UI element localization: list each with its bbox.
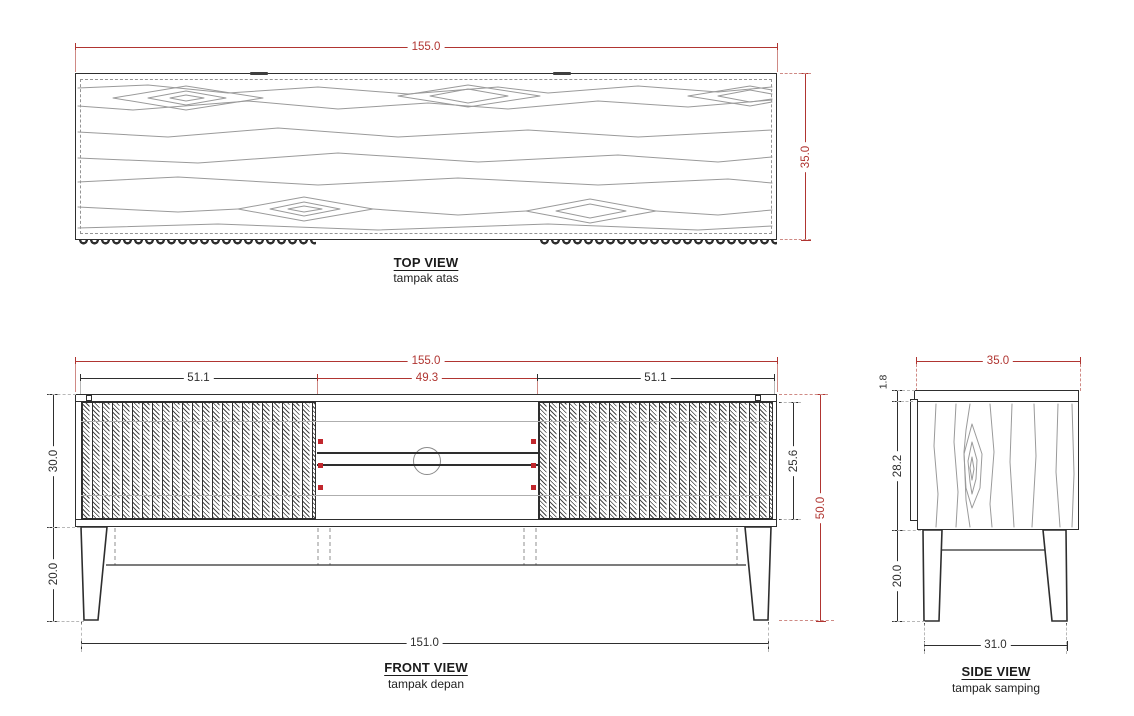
- dim-side-body-height: 28.2: [897, 401, 898, 530]
- extension-line: [892, 390, 915, 391]
- dim-side-depth-label: 35.0: [983, 355, 1013, 367]
- interior-shelf-line: [81, 421, 773, 422]
- top-view-subtitle: tampak atas: [393, 271, 458, 285]
- dim-front-overall-width-label: 155.0: [408, 355, 445, 367]
- extension-line: [47, 621, 84, 622]
- dim-front-body-height-label: 30.0: [47, 445, 59, 475]
- technical-drawing-canvas: 155.0 35.0: [0, 0, 1134, 716]
- shelf-pin-marker: [318, 463, 323, 468]
- dim-side-depth: 35.0: [916, 361, 1080, 362]
- extension-line: [777, 50, 778, 72]
- side-view-title: SIDE VIEW: [962, 664, 1031, 679]
- front-view-title: FRONT VIEW: [384, 660, 468, 675]
- dim-side-body-height-label: 28.2: [891, 450, 903, 480]
- interior-shelf-line: [81, 495, 773, 496]
- dim-front-left-door-label: 51.1: [183, 372, 213, 384]
- extension-line: [916, 364, 917, 391]
- dim-top-width: 155.0: [75, 47, 777, 48]
- wood-grain-top: [78, 76, 772, 235]
- fluted-edge-left: [78, 240, 316, 249]
- dim-front-leg-span: 151.0: [81, 643, 768, 644]
- dim-front-middle-label: 49.3: [412, 372, 442, 384]
- dim-front-body-height: 30.0: [53, 394, 54, 527]
- extension-line: [768, 622, 769, 652]
- shelf-pin-marker: [318, 439, 323, 444]
- top-view-panel: [75, 73, 777, 240]
- extension-line: [80, 381, 81, 394]
- middle-shelf-top: [317, 452, 538, 454]
- dim-front-right-door-width: 51.1: [537, 378, 774, 379]
- extension-line: [892, 621, 925, 622]
- dim-front-leg-height: 20.0: [53, 527, 54, 621]
- extension-line: [1080, 364, 1081, 391]
- extension-line: [47, 394, 76, 395]
- extension-line: [1066, 623, 1067, 654]
- extension-line: [779, 402, 801, 403]
- extension-line: [774, 381, 775, 394]
- dim-front-leg-height-label: 20.0: [47, 559, 59, 589]
- front-legs: [60, 527, 780, 623]
- dim-side-leg-span-label: 31.0: [980, 639, 1010, 651]
- hinge-mark: [250, 72, 268, 75]
- dim-front-left-door-width: 51.1: [80, 378, 317, 379]
- extension-line: [75, 50, 76, 72]
- shelf-pin-marker: [531, 439, 536, 444]
- side-body-panel: [917, 401, 1079, 530]
- corner-joint-left: [86, 395, 92, 401]
- extension-line: [924, 623, 925, 654]
- dim-front-right-door-label: 51.1: [640, 372, 670, 384]
- dim-front-total-height-label: 50.0: [814, 492, 826, 522]
- side-door-profile: [910, 399, 918, 521]
- dim-front-middle-width: 49.3: [317, 378, 537, 379]
- dim-front-leg-span-label: 151.0: [406, 637, 443, 649]
- side-view-subtitle: tampak samping: [952, 681, 1040, 695]
- front-right-fluted-door: [538, 402, 773, 519]
- extension-line: [779, 620, 834, 621]
- dim-front-door-height-label: 25.6: [787, 445, 799, 475]
- extension-line: [892, 401, 913, 402]
- extension-line: [892, 530, 921, 531]
- hinge-mark: [553, 72, 571, 75]
- fluted-edge-right: [539, 240, 777, 249]
- dim-side-leg-height-label: 20.0: [891, 560, 903, 590]
- extension-line: [780, 73, 811, 74]
- corner-joint-right: [755, 395, 761, 401]
- dim-front-total-height: 50.0: [820, 394, 821, 621]
- dim-top-depth: 35.0: [805, 73, 806, 240]
- front-left-fluted-door: [81, 402, 316, 519]
- shelf-pin-marker: [531, 463, 536, 468]
- side-legs: [905, 530, 1085, 624]
- dim-front-overall-width: 155.0: [75, 361, 777, 362]
- top-view-title: TOP VIEW: [394, 255, 459, 270]
- front-view-subtitle: tampak depan: [388, 677, 464, 691]
- dim-top-depth-label: 35.0: [799, 141, 811, 171]
- dim-top-width-label: 155.0: [408, 41, 445, 53]
- dim-front-door-height: 25.6: [793, 402, 794, 519]
- front-bottom-rail-line: [76, 519, 776, 520]
- extension-line: [75, 364, 76, 392]
- extension-line: [47, 527, 80, 528]
- extension-line: [779, 519, 801, 520]
- middle-shelf-bottom: [317, 464, 538, 466]
- extension-line: [780, 239, 811, 240]
- extension-line: [777, 364, 778, 392]
- dim-side-top-thickness: [897, 390, 898, 401]
- extension-line: [779, 394, 828, 395]
- dim-side-top-thickness-label: 1.8: [877, 373, 889, 392]
- shelf-pin-marker: [318, 485, 323, 490]
- dim-side-leg-height: 20.0: [897, 530, 898, 621]
- dim-side-leg-span: 31.0: [924, 645, 1067, 646]
- extension-line: [81, 622, 82, 652]
- wood-grain-side: [920, 404, 1076, 527]
- shelf-pin-marker: [531, 485, 536, 490]
